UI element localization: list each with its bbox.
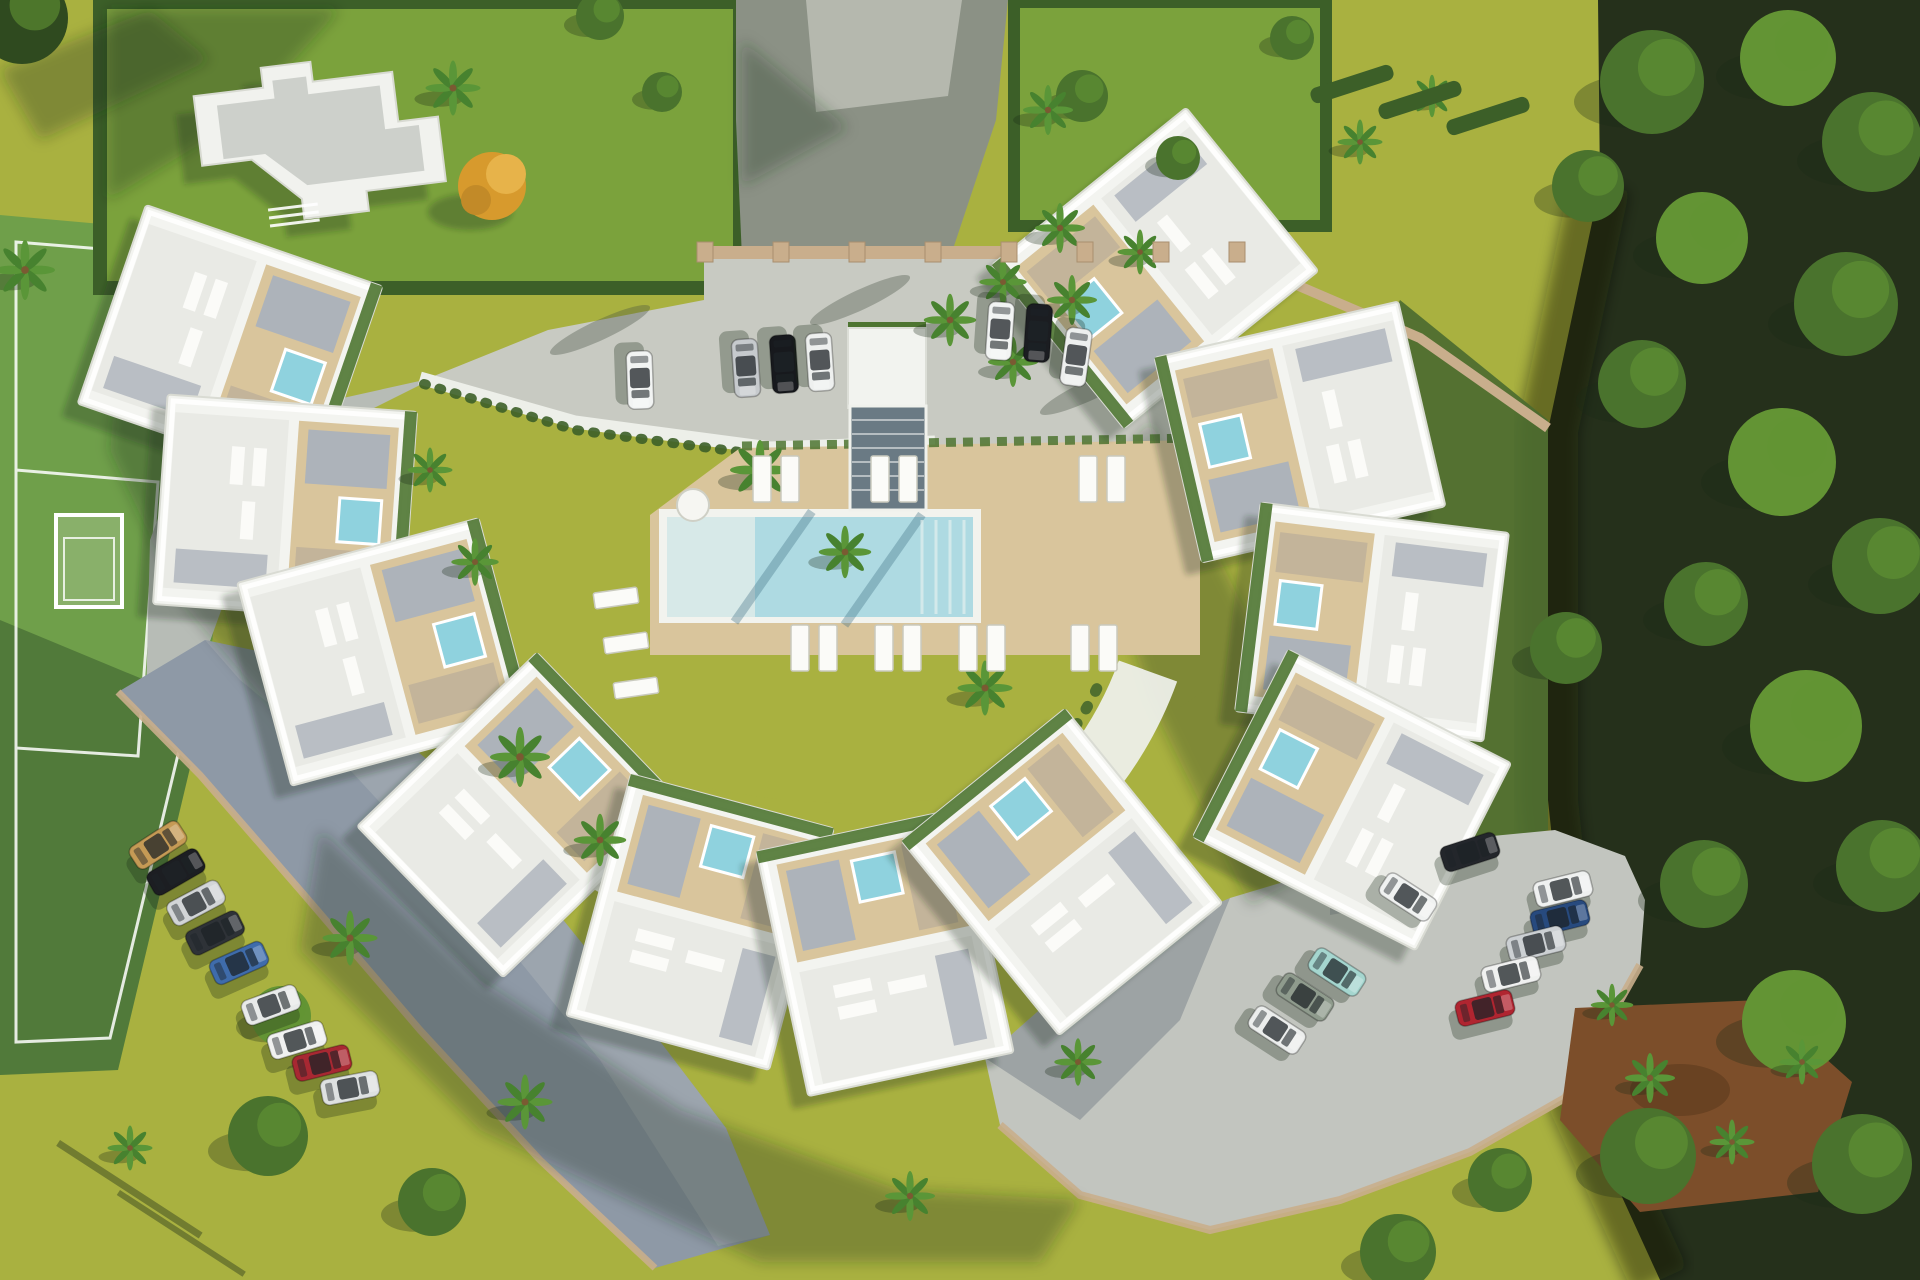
wall-pillar [1229, 242, 1245, 262]
site-plan-rendering [0, 0, 1920, 1280]
viewport [0, 0, 1920, 1280]
sun-lounger [1071, 625, 1089, 671]
sun-lounger [903, 625, 921, 671]
sun-lounger [1107, 456, 1125, 502]
football-goal [56, 515, 122, 607]
car [614, 342, 654, 410]
wall-pillar [1153, 242, 1169, 262]
car [756, 325, 799, 394]
sun-lounger [899, 456, 917, 502]
driveway-pad [806, 0, 962, 112]
sun-lounger [871, 456, 889, 502]
sun-lounger [819, 625, 837, 671]
sun-lounger [987, 625, 1005, 671]
car [718, 329, 761, 398]
pool-shallow-end [667, 517, 755, 617]
wall-pillar [697, 242, 713, 262]
sun-lounger [781, 456, 799, 502]
sun-lounger [1079, 456, 1097, 502]
wall-pillar [773, 242, 789, 262]
sun-lounger [1099, 625, 1117, 671]
sun-lounger [791, 625, 809, 671]
wall-pillar [1077, 242, 1093, 262]
wall-pillar [1001, 242, 1017, 262]
pool-house [848, 328, 926, 408]
sun-lounger [875, 625, 893, 671]
wall-pillar [849, 242, 865, 262]
car [792, 323, 835, 392]
sun-lounger [959, 625, 977, 671]
round-table [677, 489, 709, 521]
sun-lounger [753, 456, 771, 502]
wall-pillar [925, 242, 941, 262]
